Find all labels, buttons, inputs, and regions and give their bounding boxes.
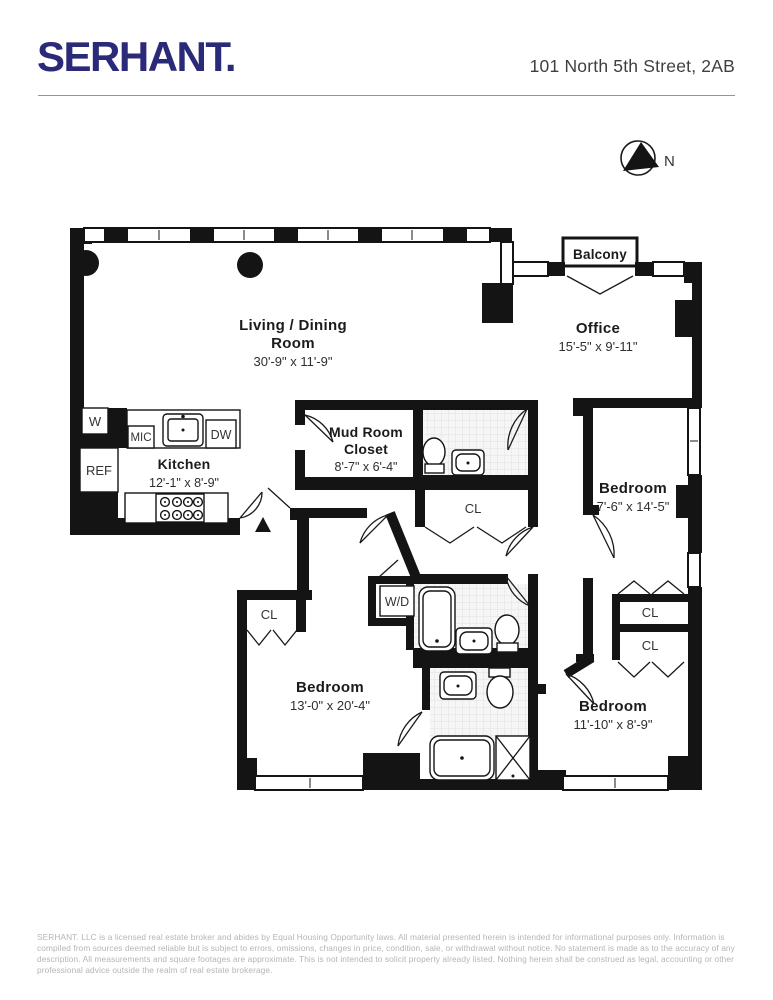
bathtub-icon (419, 587, 455, 651)
kitchen-label: Kitchen (158, 456, 211, 472)
bedroom-southwest-dims: 13'-0" x 20'-4" (290, 698, 370, 713)
mudroom-dims: 8'-7" x 6'-4" (335, 460, 398, 474)
closet-label-east: CL (642, 605, 659, 620)
bedroom-east-dims: 7'-6" x 14'-5" (597, 499, 670, 514)
washer-dryer-label: W/D (385, 595, 409, 609)
window-band-north (84, 228, 490, 242)
sink-icon (440, 672, 476, 699)
floorplan-drawing: N (0, 0, 773, 1000)
sink-icon (452, 450, 484, 475)
bedroom-southeast-label: Bedroom (579, 698, 647, 715)
structural-column (73, 250, 99, 276)
toilet-icon (495, 615, 519, 652)
entry-arrow (255, 517, 271, 532)
mudroom-label2: Closet (344, 441, 388, 457)
closet-label-southeast: CL (642, 638, 659, 653)
compass-north-icon: N (621, 141, 675, 175)
toilet-icon (487, 668, 513, 708)
compass-north-label: N (664, 153, 675, 170)
bedroom-southeast-dims: 11'-10" x 8'-9" (574, 717, 653, 732)
legal-disclaimer: SERHANT. LLC is a licensed real estate b… (37, 932, 742, 976)
mudroom-label: Mud Room (329, 424, 403, 440)
sink-icon (456, 628, 492, 654)
bedroom-east-label: Bedroom (599, 480, 667, 497)
dishwasher-label: DW (211, 428, 232, 442)
living-room-dims: 30'-9" x 11'-9" (254, 354, 333, 369)
shower-icon (496, 736, 530, 780)
living-room-label: Living / Dining (239, 317, 347, 334)
kitchen-dims: 12'-1" x 8'-9" (149, 476, 219, 490)
bathtub-icon (430, 736, 494, 780)
toilet-icon (423, 438, 445, 473)
refrigerator-label: REF (86, 463, 112, 478)
closet-label-hall: CL (465, 501, 482, 516)
kitchen-sink-icon (163, 414, 203, 446)
structural-column (237, 252, 263, 278)
washer-label: W (89, 414, 102, 429)
closet-label-southwest: CL (261, 607, 278, 622)
office-dims: 15'-5" x 9'-11" (559, 339, 638, 354)
stove-icon (156, 494, 204, 522)
bedroom-southwest-label: Bedroom (296, 679, 364, 696)
microwave-label: MIC (130, 432, 151, 444)
balcony-label: Balcony (573, 247, 627, 262)
office-label: Office (576, 320, 620, 337)
living-room-label2: Room (271, 335, 315, 352)
floorplan-page: { "header": { "logo": "SERHANT.", "addre… (0, 0, 773, 1000)
